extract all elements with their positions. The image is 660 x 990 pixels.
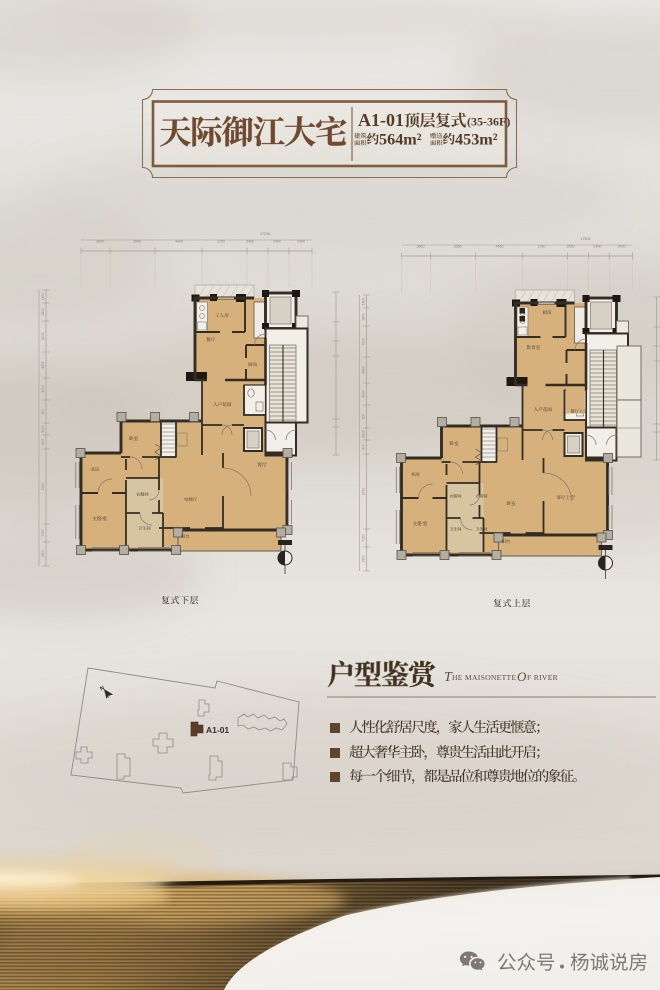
svg-text:A1-01: A1-01 bbox=[358, 110, 404, 130]
svg-text:1400: 1400 bbox=[362, 298, 366, 306]
svg-text:1800: 1800 bbox=[41, 308, 45, 316]
svg-text:4400: 4400 bbox=[41, 361, 45, 369]
svg-text:4400: 4400 bbox=[362, 366, 366, 374]
svg-text:N: N bbox=[99, 685, 105, 692]
svg-text:4450: 4450 bbox=[496, 245, 504, 249]
svg-text:1400: 1400 bbox=[41, 550, 45, 558]
svg-text:HE MAISONETTE: HE MAISONETTE bbox=[452, 673, 516, 682]
svg-text:1800: 1800 bbox=[362, 313, 366, 321]
svg-text:2400: 2400 bbox=[297, 240, 305, 244]
svg-text:1400: 1400 bbox=[362, 555, 366, 563]
svg-text:800: 800 bbox=[41, 439, 45, 445]
svg-text:3450: 3450 bbox=[246, 240, 254, 244]
svg-text:4200: 4200 bbox=[362, 390, 366, 398]
svg-text:2430: 2430 bbox=[567, 245, 575, 249]
svg-text:2400: 2400 bbox=[594, 245, 602, 249]
svg-text:2150: 2150 bbox=[41, 483, 45, 491]
svg-text:7150: 7150 bbox=[41, 529, 45, 537]
svg-text:453m²: 453m² bbox=[455, 131, 498, 149]
svg-text:3100: 3100 bbox=[41, 333, 45, 341]
svg-text:F RIVER: F RIVER bbox=[527, 673, 559, 682]
svg-text:(35-36F): (35-36F) bbox=[467, 115, 510, 129]
svg-text:2400: 2400 bbox=[273, 240, 281, 244]
svg-text:3100: 3100 bbox=[362, 338, 366, 346]
svg-text:2400: 2400 bbox=[618, 245, 626, 249]
svg-text:O: O bbox=[517, 669, 527, 684]
svg-text:2600: 2600 bbox=[133, 240, 141, 244]
svg-text:564m²: 564m² bbox=[379, 131, 422, 149]
svg-text:3800: 3800 bbox=[96, 240, 104, 244]
svg-text:A1-01: A1-01 bbox=[206, 725, 229, 735]
svg-text:2150: 2150 bbox=[362, 488, 366, 496]
svg-text:900: 900 bbox=[362, 414, 366, 420]
svg-text:17236: 17236 bbox=[260, 232, 270, 236]
svg-text:1750: 1750 bbox=[538, 245, 546, 249]
svg-text:1750: 1750 bbox=[217, 240, 225, 244]
svg-text:3860: 3860 bbox=[417, 245, 425, 249]
svg-text:900: 900 bbox=[41, 409, 45, 415]
svg-text:7150: 7150 bbox=[362, 534, 366, 542]
svg-text:3900: 3900 bbox=[41, 425, 45, 433]
svg-text:17508: 17508 bbox=[581, 237, 591, 241]
svg-text:4200: 4200 bbox=[41, 385, 45, 393]
svg-text:3665: 3665 bbox=[454, 245, 462, 249]
svg-text:800: 800 bbox=[362, 444, 366, 450]
svg-text:1400: 1400 bbox=[41, 293, 45, 301]
svg-text:4400: 4400 bbox=[175, 240, 183, 244]
svg-text:3900: 3900 bbox=[362, 430, 366, 438]
